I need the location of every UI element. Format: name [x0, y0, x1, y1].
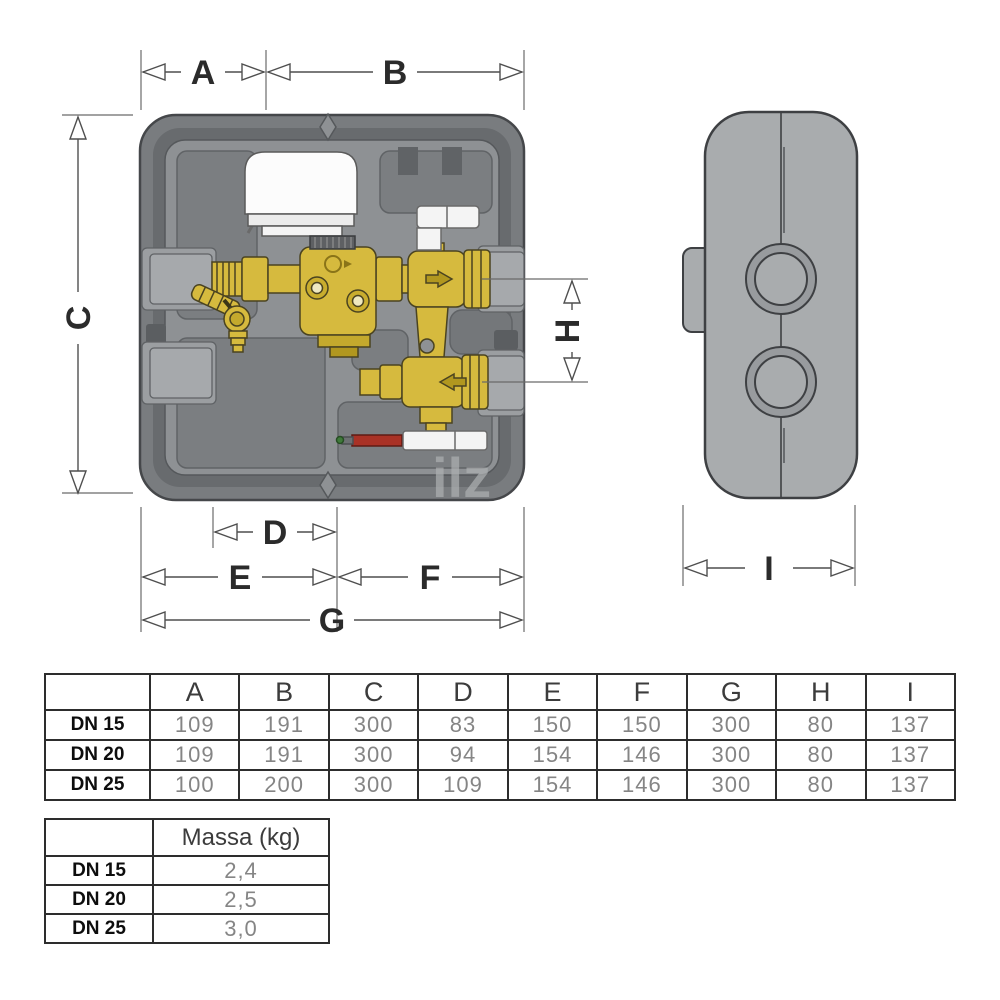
- mass-table-header-row: Massa (kg): [45, 819, 329, 856]
- upper-lever: [417, 206, 479, 228]
- mass-value-cell: 3,0: [153, 914, 329, 943]
- mass-row-dn15: DN 15 2,4: [45, 856, 329, 885]
- col-header-e: E: [508, 674, 597, 710]
- dim-value-cell: 300: [687, 740, 776, 770]
- row-label: DN 20: [45, 885, 153, 914]
- col-header-i: I: [866, 674, 956, 710]
- mass-row-dn20: DN 20 2,5: [45, 885, 329, 914]
- dim-value-cell: 80: [776, 740, 865, 770]
- dimensions-table-header-row: A B C D E F G H I: [45, 674, 955, 710]
- dim-label-f: F: [420, 559, 441, 597]
- technical-drawing-page: ilz: [0, 0, 1000, 1000]
- table-row-dn20: DN 20 109 191 300 94 154 146 300 80 137: [45, 740, 955, 770]
- table-row-dn15: DN 15 109 191 300 83 150 150 300 80 137: [45, 710, 955, 740]
- table-row-dn25: DN 25 100 200 300 109 154 146 300 80 137: [45, 770, 955, 800]
- dim-label-a: A: [191, 54, 216, 92]
- mass-row-dn25: DN 25 3,0: [45, 914, 329, 943]
- dim-label-e: E: [229, 559, 252, 597]
- dim-value-cell: 109: [150, 740, 239, 770]
- dim-value-cell: 300: [687, 770, 776, 800]
- dim-label-g: G: [319, 602, 345, 640]
- mass-value-cell: 2,5: [153, 885, 329, 914]
- dim-value-cell: 300: [329, 770, 418, 800]
- row-label: DN 25: [45, 914, 153, 943]
- wall-slot: [494, 330, 518, 350]
- mass-col-header: Massa (kg): [153, 819, 329, 856]
- dim-value-cell: 80: [776, 770, 865, 800]
- dim-label-c: C: [60, 306, 98, 331]
- dim-value-cell: 94: [418, 740, 507, 770]
- temperature-probe: [337, 435, 403, 446]
- dim-value-cell: 80: [776, 710, 865, 740]
- mass-table: Massa (kg) DN 15 2,4 DN 20 2,5 DN 25 3,0: [44, 818, 330, 944]
- dim-value-cell: 150: [508, 710, 597, 740]
- pocket-tab: [442, 147, 462, 175]
- col-header-g: G: [687, 674, 776, 710]
- dim-value-cell: 146: [597, 740, 686, 770]
- dim-value-cell: 154: [508, 740, 597, 770]
- mass-value-cell: 2,4: [153, 856, 329, 885]
- row-label: DN 25: [45, 770, 150, 800]
- valve-insulation-box-drawing: ilz: [0, 0, 1000, 660]
- col-header-c: C: [329, 674, 418, 710]
- col-header-h: H: [776, 674, 865, 710]
- row-label: DN 15: [45, 710, 150, 740]
- dim-value-cell: 191: [239, 740, 328, 770]
- row-label: DN 20: [45, 740, 150, 770]
- dim-value-cell: 83: [418, 710, 507, 740]
- dim-value-cell: 109: [150, 710, 239, 740]
- dim-value-cell: 300: [687, 710, 776, 740]
- dim-value-cell: 137: [866, 770, 956, 800]
- dim-value-cell: 137: [866, 740, 956, 770]
- col-header-a: A: [150, 674, 239, 710]
- dim-value-cell: 191: [239, 710, 328, 740]
- col-header-b: B: [239, 674, 328, 710]
- dim-value-cell: 300: [329, 710, 418, 740]
- row-label: DN 15: [45, 856, 153, 885]
- pocket-tab: [398, 147, 418, 175]
- dim-value-cell: 200: [239, 770, 328, 800]
- col-header-d: D: [418, 674, 507, 710]
- dim-value-cell: 150: [597, 710, 686, 740]
- corner-cell: [45, 819, 153, 856]
- dim-label-b: B: [383, 54, 408, 92]
- corner-cell: [45, 674, 150, 710]
- dim-label-h: H: [549, 319, 587, 344]
- thermo-actuator: [245, 152, 357, 249]
- dim-value-cell: 100: [150, 770, 239, 800]
- wall-slot: [146, 324, 166, 344]
- dim-value-cell: 154: [508, 770, 597, 800]
- col-header-f: F: [597, 674, 686, 710]
- dim-label-i: I: [764, 550, 773, 588]
- dim-value-cell: 300: [329, 740, 418, 770]
- watermark: ilz: [432, 446, 491, 509]
- dim-value-cell: 109: [418, 770, 507, 800]
- dimensions-table: A B C D E F G H I DN 15 109 191 300 83 1…: [44, 673, 956, 801]
- side-view: [683, 112, 857, 498]
- front-view: ilz: [140, 114, 524, 509]
- dim-label-d: D: [263, 514, 288, 552]
- dim-value-cell: 146: [597, 770, 686, 800]
- dim-value-cell: 137: [866, 710, 956, 740]
